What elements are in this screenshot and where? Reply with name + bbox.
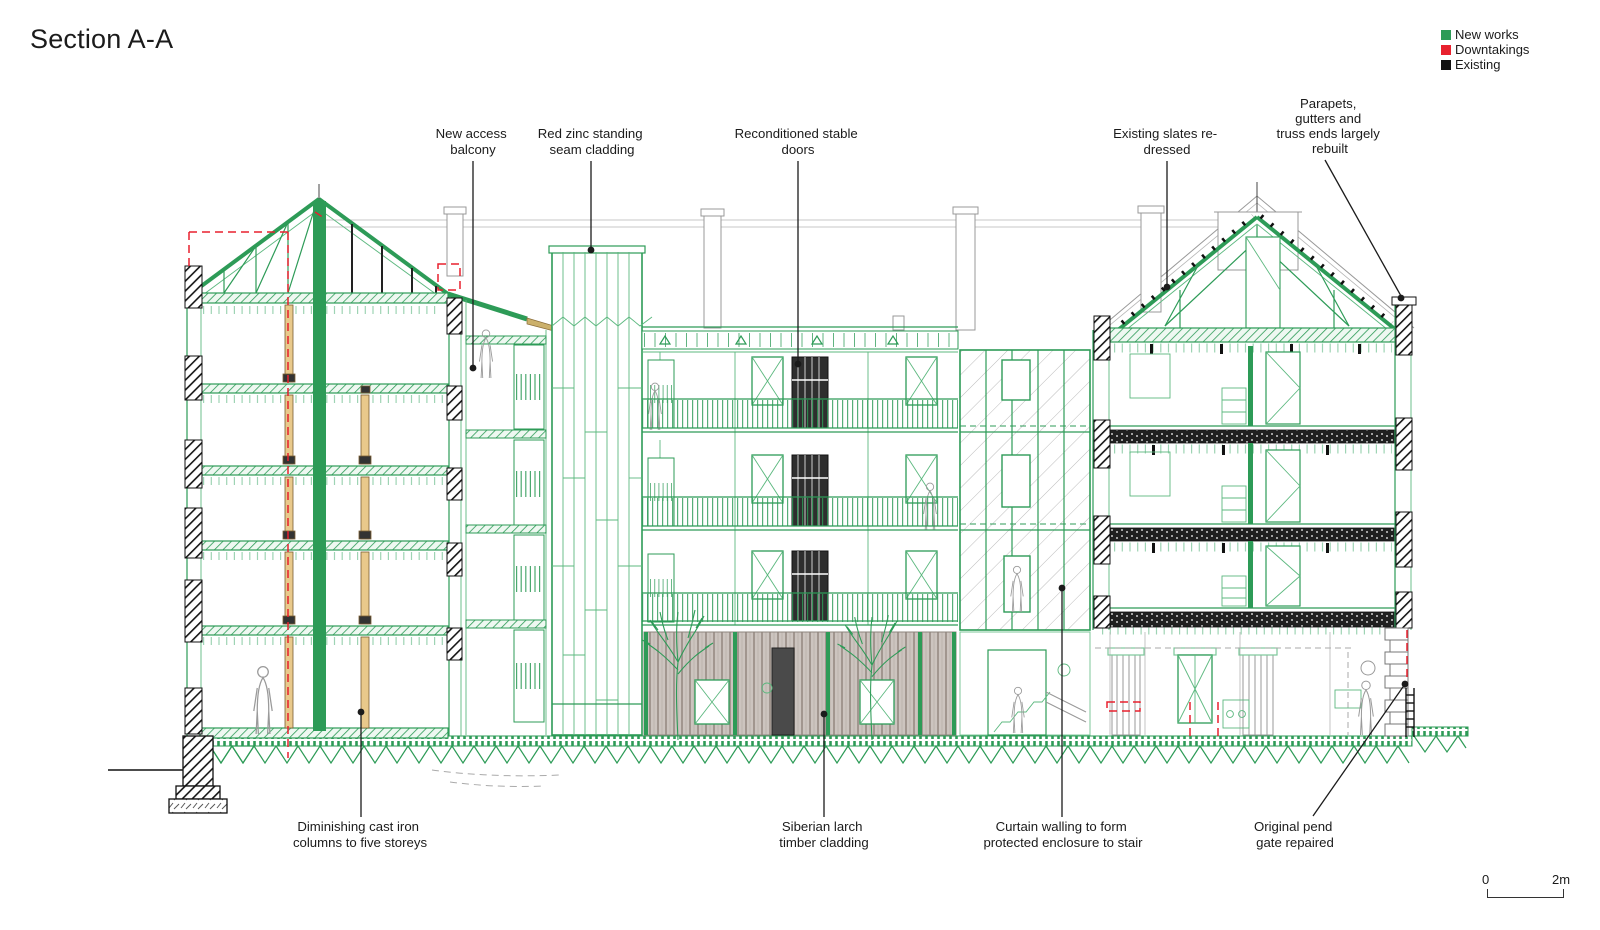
room-interiors (1130, 346, 1300, 608)
zinc-clad-tower (549, 246, 652, 735)
annotation-text: New access balcony (436, 126, 511, 157)
timber-cladding-ground-floor (644, 632, 956, 735)
leader-dot (821, 711, 828, 718)
leader-dot (470, 365, 477, 372)
leader-dot (795, 361, 802, 368)
middle-block-elevation (642, 207, 978, 740)
leader-dot (358, 709, 365, 716)
annotation-text: Red zinc standing seam cladding (538, 126, 647, 157)
curtain-wall-enclosure (960, 350, 1090, 735)
annotation-text: Reconditioned stable doors (735, 126, 862, 157)
annotation-text: Parapets, gutters and truss ends largely… (1276, 96, 1383, 156)
cast-iron-columns (283, 305, 371, 728)
annotation-text: Curtain walling to form protected enclos… (983, 819, 1143, 850)
leader-dot (1164, 284, 1171, 291)
leader-dot (1059, 585, 1066, 592)
chimney (444, 207, 466, 276)
left-building-section (108, 184, 527, 813)
right-building-section (1093, 182, 1416, 737)
leader-dot (1398, 295, 1405, 302)
windows-and-doors (648, 357, 937, 622)
stair-entrance (960, 632, 1090, 735)
leader-dot (1402, 681, 1409, 688)
annotation-text: Siberian larch timber cladding (779, 819, 868, 850)
leader-line (1325, 160, 1401, 296)
annotation-text: Existing slates re- dressed (1113, 126, 1221, 157)
annotation-text: Original pend gate repaired (1254, 819, 1336, 850)
foundation-pier (108, 736, 227, 813)
new-structural-column (313, 201, 326, 731)
existing-masonry-left-wall (1094, 316, 1110, 628)
drawing-sheet: Section A-A New works Downtakings Existi… (0, 0, 1600, 930)
annotation-red-zinc-cladding: Red zinc standing seam cladding (538, 126, 647, 253)
pend-ground-floor (1095, 628, 1414, 737)
section-drawing: New access balcony Red zinc standing sea… (0, 0, 1600, 930)
leader-line (1313, 684, 1405, 816)
stable-doors (792, 357, 828, 621)
annotation-parapets-rebuilt: Parapets, gutters and truss ends largely… (1276, 96, 1404, 301)
leader-dot (588, 247, 595, 254)
annotation-text: Diminishing cast iron columns to five st… (293, 819, 428, 850)
